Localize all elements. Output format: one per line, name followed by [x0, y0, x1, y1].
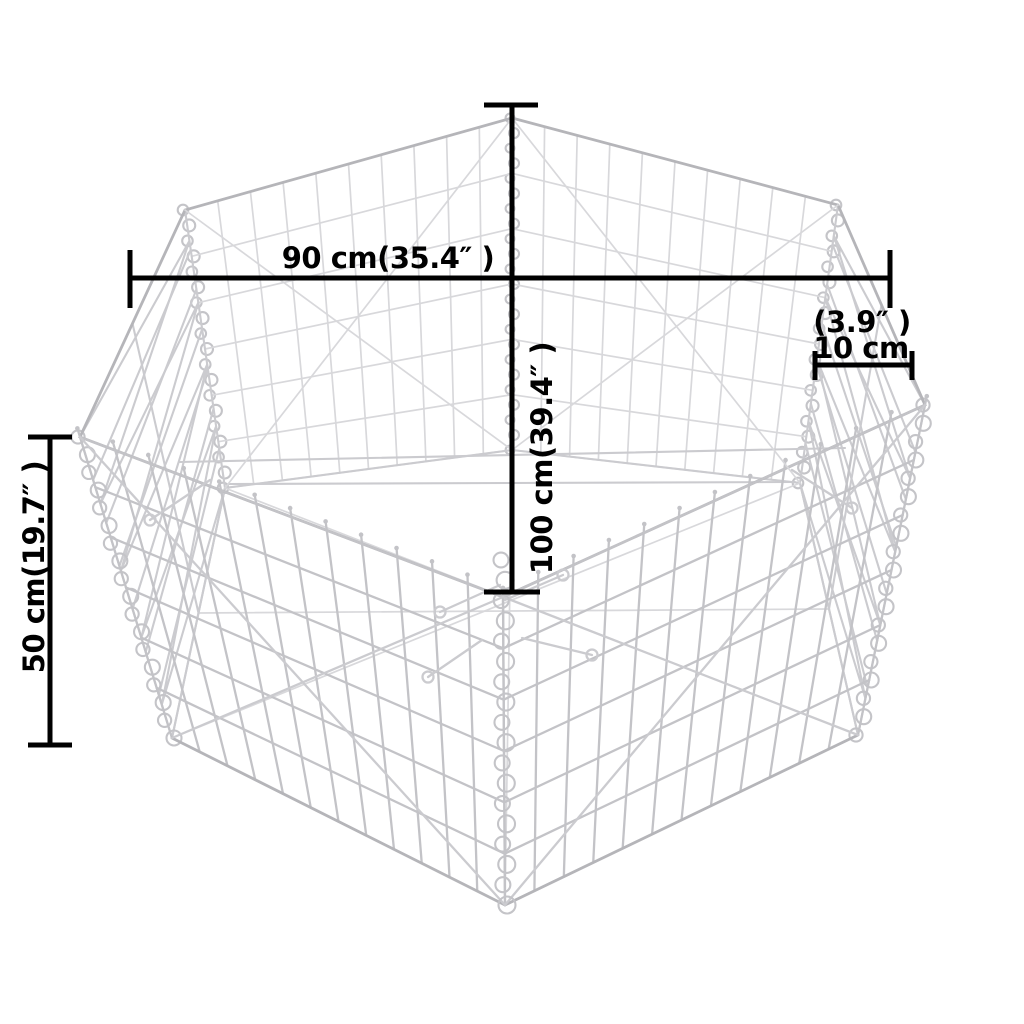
diagonal-brace-wires: [80, 118, 925, 905]
width-dimension-label: 90 cm(35.4″ ): [282, 241, 494, 275]
product-dimension-diagram: 90 cm(35.4″ ) 100 cm(39.4″ ) 50 cm(19.7″…: [0, 0, 1024, 1024]
height-dimension-label: 50 cm(19.7″ ): [17, 461, 51, 673]
gabion-basket-figure: 90 cm(35.4″ ) 100 cm(39.4″ ) 50 cm(19.7″…: [0, 0, 1024, 1024]
dimension-height-50cm: 50 cm(19.7″ ): [17, 437, 72, 745]
side-dimension-label-cm: 10 cm: [813, 331, 908, 365]
dimension-side-10cm: (3.9″ ) 10 cm: [813, 305, 912, 380]
depth-dimension-label: 100 cm(39.4″ ): [525, 342, 559, 574]
